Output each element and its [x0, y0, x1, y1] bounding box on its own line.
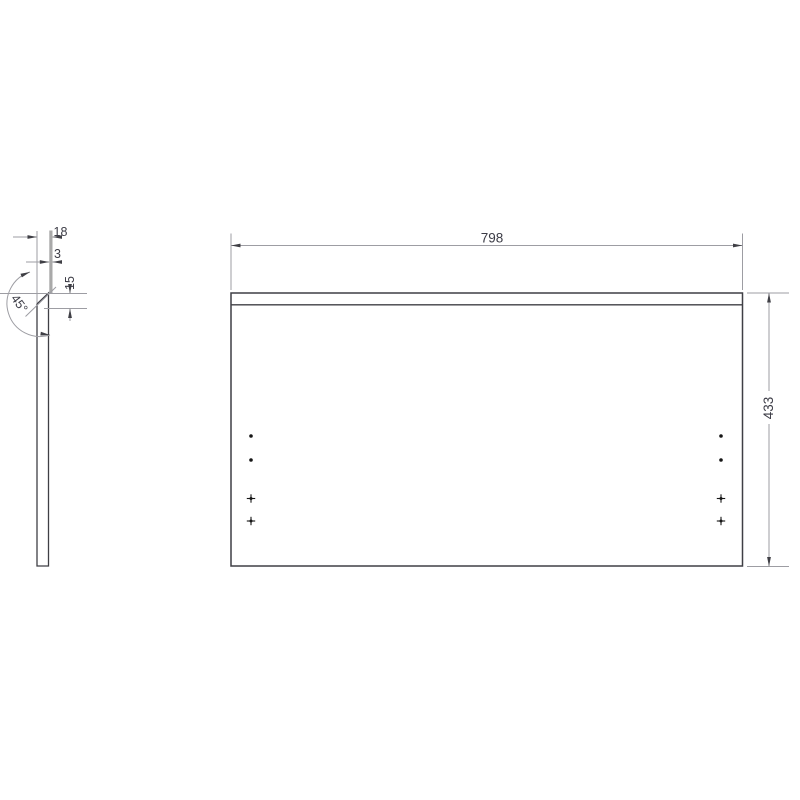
dim-label-18: 18 — [54, 225, 68, 239]
dimension-798-width: 798 — [231, 231, 743, 291]
dim-label-798: 798 — [481, 231, 504, 246]
dimension-18: 18 — [13, 225, 67, 303]
hole-marker — [249, 434, 253, 438]
hole-marker — [719, 434, 723, 438]
front-view: 798 433 — [231, 231, 789, 567]
dim-label-15: 15 — [63, 276, 77, 290]
cad-drawing: 18 3 15 45° — [0, 0, 800, 800]
dim-label-3: 3 — [54, 247, 61, 261]
front-view-panel-outline — [231, 293, 743, 566]
side-view: 18 3 15 45° — [0, 225, 87, 566]
dimension-433-height: 433 — [747, 293, 789, 567]
side-view-edge-band — [49, 231, 52, 294]
hole-marker — [249, 458, 253, 462]
hole-marker — [719, 458, 723, 462]
dim-label-433: 433 — [761, 397, 776, 420]
dimension-3: 3 — [26, 247, 62, 264]
dim-label-45deg: 45° — [8, 292, 30, 316]
